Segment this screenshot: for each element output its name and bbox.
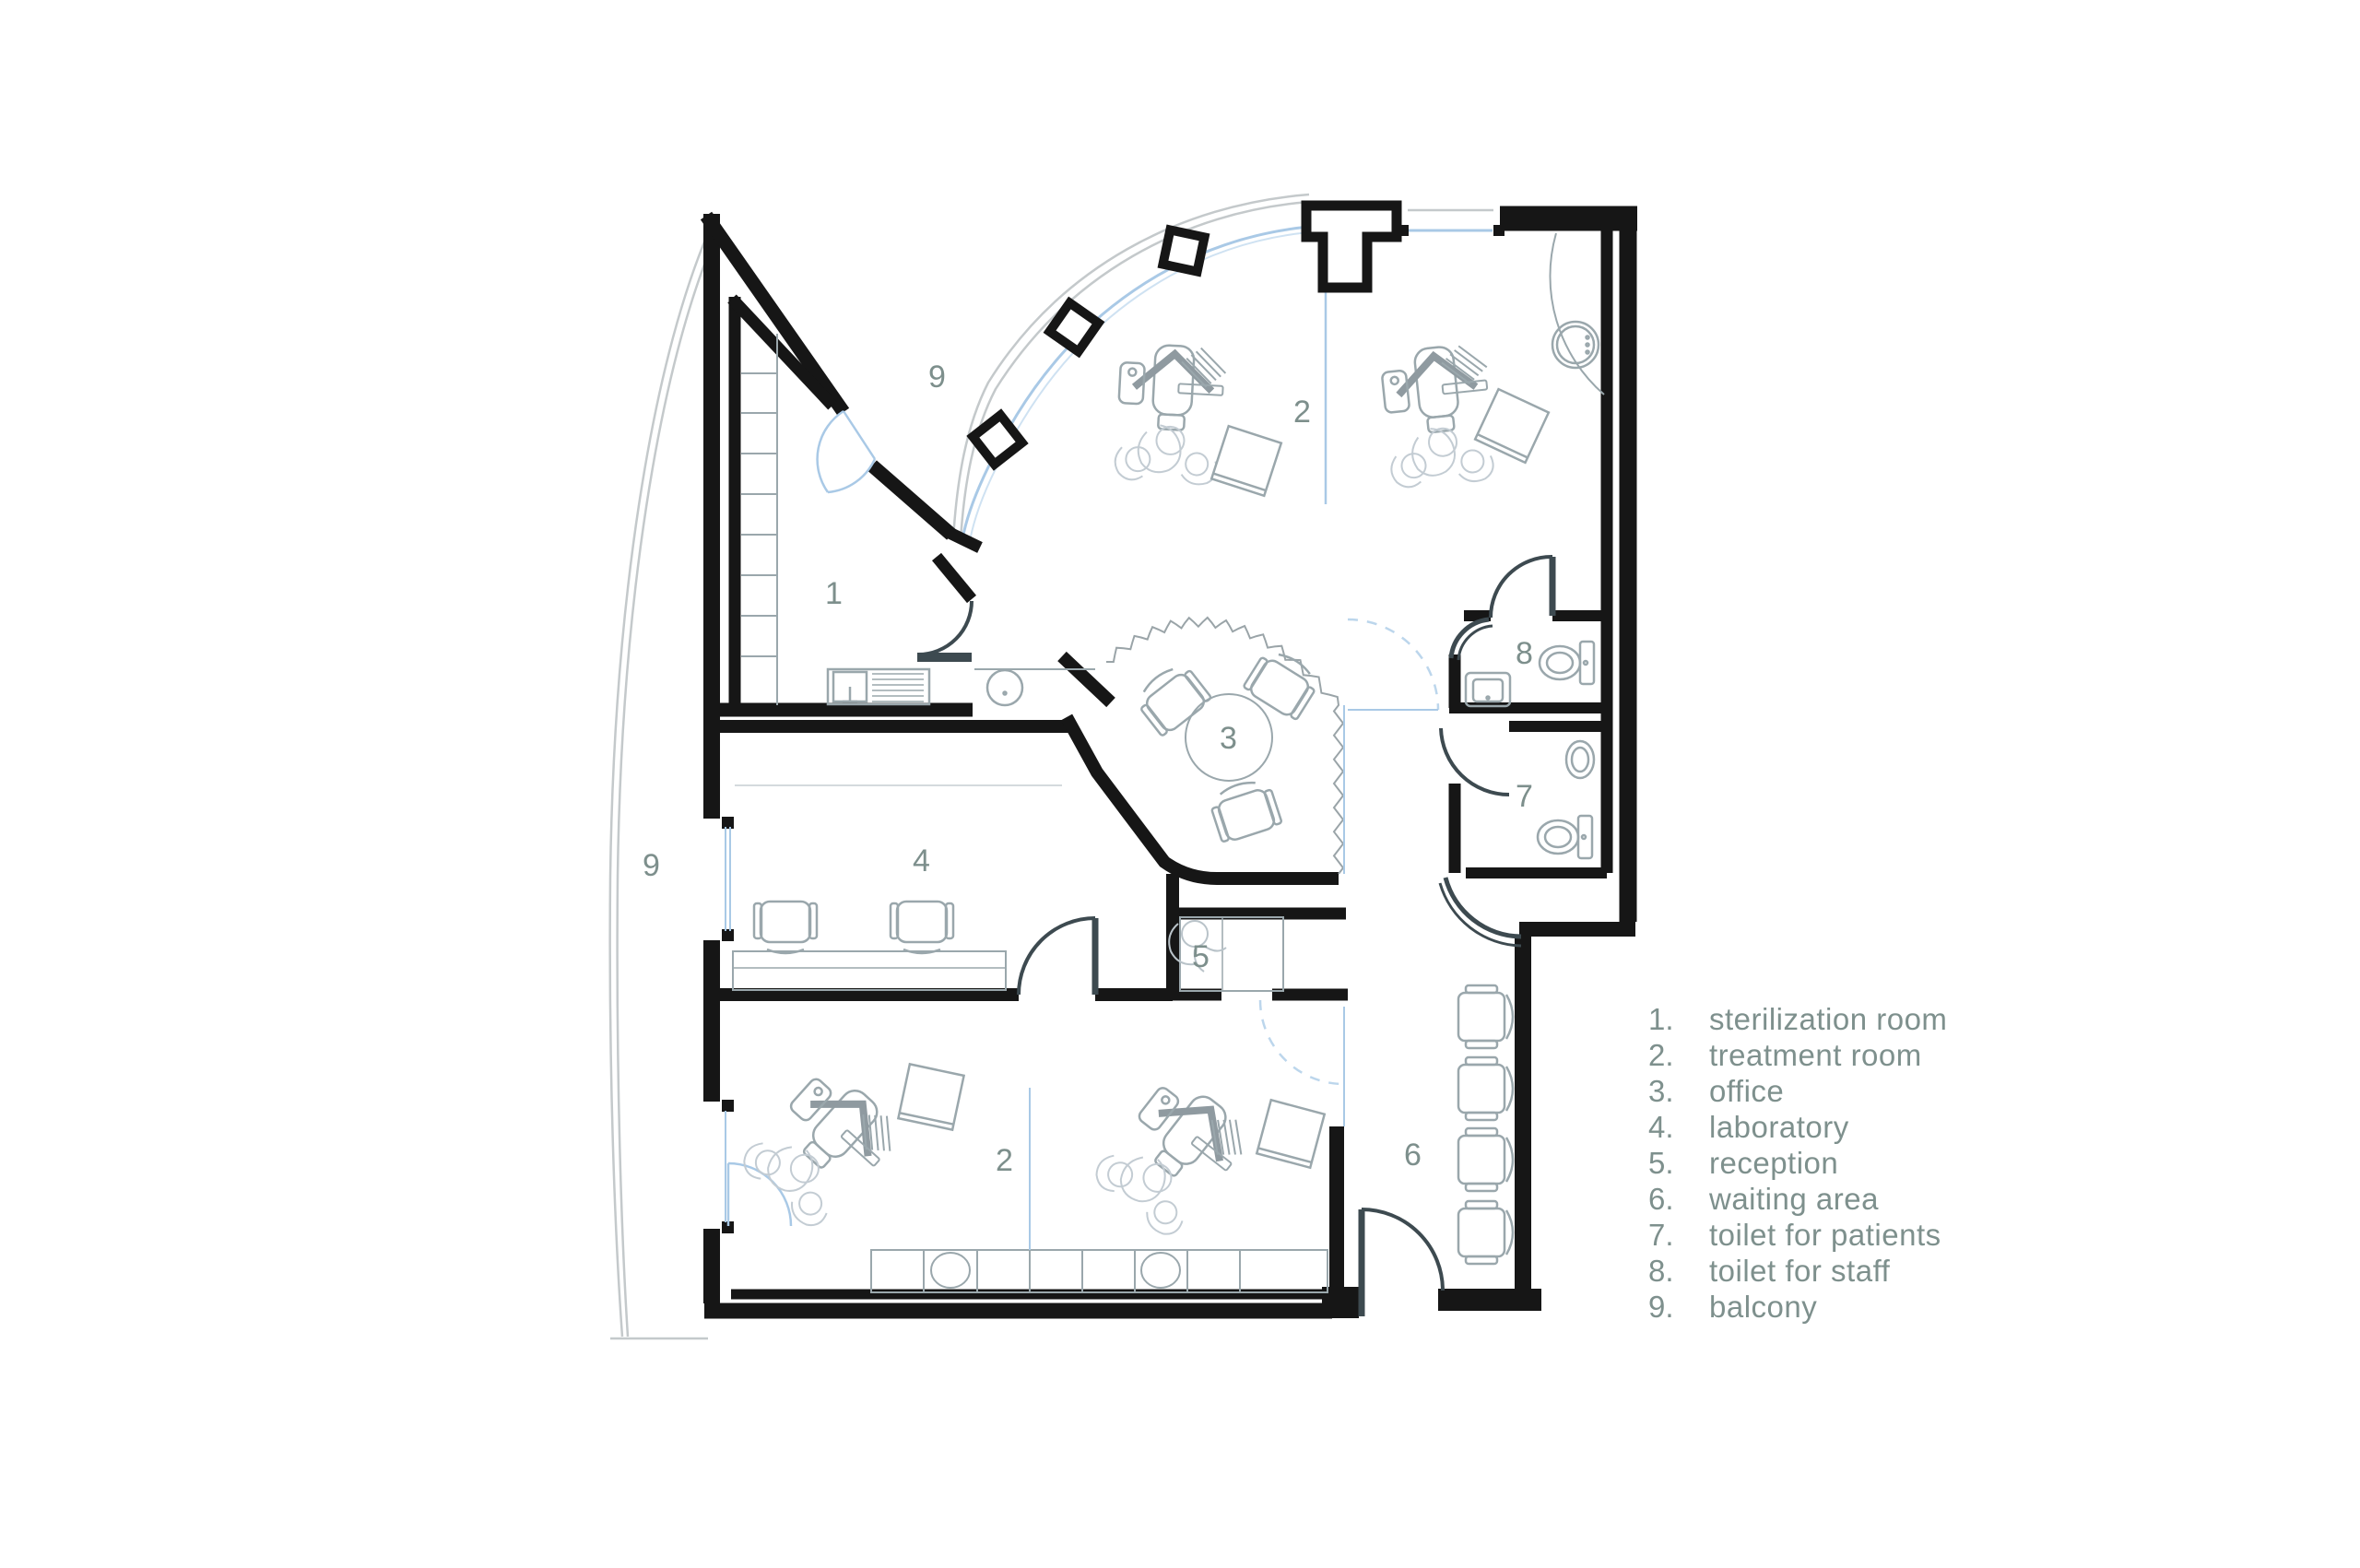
room-label-balcony-left: 9 <box>643 848 661 883</box>
room-label-reception: 5 <box>1192 939 1210 974</box>
toilet-staff-fixture <box>1540 642 1594 684</box>
treatment-cabinets <box>871 1250 1327 1292</box>
floor-plan-drawing: 1 2 2 3 4 5 6 7 8 9 9 <box>0 0 2360 1568</box>
room-label-waiting: 6 <box>1404 1138 1422 1173</box>
waiting-chair-2 <box>1458 1057 1513 1120</box>
room-label-sterilization: 1 <box>825 576 844 611</box>
room-label-toilet-patients: 7 <box>1516 779 1534 814</box>
legend-number: 4. <box>1648 1109 1709 1145</box>
dental-chair-top-right <box>1379 342 1498 489</box>
side-table-4 <box>1257 1100 1324 1167</box>
room-label-laboratory: 4 <box>913 843 931 878</box>
lab-chair-2 <box>891 902 953 953</box>
waiting-chair-1 <box>1458 985 1513 1048</box>
toilet-patients-fixture <box>1538 816 1592 858</box>
room-label-balcony-top: 9 <box>928 360 947 395</box>
toilet-patients-sink <box>1566 741 1594 778</box>
legend-number: 2. <box>1648 1037 1709 1073</box>
side-table-2 <box>1475 389 1549 463</box>
dental-chair-bottom-left <box>737 1062 907 1234</box>
legend-row: 4.laboratory <box>1648 1109 1947 1145</box>
legend-label: office <box>1709 1073 1784 1109</box>
legend-label: sterilization room <box>1709 1001 1947 1037</box>
lab-chair-1 <box>754 902 817 953</box>
legend-number: 3. <box>1648 1073 1709 1109</box>
dental-chair-bottom-right <box>1089 1070 1257 1244</box>
legend: 1.sterilization room 2.treatment room 3.… <box>1648 1001 1947 1325</box>
legend-label: laboratory <box>1709 1109 1849 1145</box>
legend-label: balcony <box>1709 1289 1817 1325</box>
toilet-staff-sink <box>1466 673 1510 706</box>
legend-row: 7.toilet for patients <box>1648 1217 1947 1253</box>
legend-number: 9. <box>1648 1289 1709 1325</box>
shelving <box>741 334 777 705</box>
room-label-toilet-staff: 8 <box>1516 636 1534 671</box>
legend-row: 8.toilet for staff <box>1648 1253 1947 1289</box>
legend-row: 9.balcony <box>1648 1289 1947 1325</box>
dental-chair-top-left <box>1115 343 1227 486</box>
legend-row: 6.waiting area <box>1648 1181 1947 1217</box>
side-table-1 <box>1211 426 1281 496</box>
doors <box>728 411 1552 1316</box>
room-label-office: 3 <box>1220 721 1238 756</box>
legend-number: 8. <box>1648 1253 1709 1289</box>
room-label-treatment-top: 2 <box>1293 395 1312 430</box>
waiting-chair-3 <box>1458 1128 1513 1191</box>
walls <box>704 206 1637 1318</box>
sterilization-counter <box>828 669 929 704</box>
reception-desk <box>1169 917 1283 991</box>
legend-label: toilet for staff <box>1709 1253 1890 1289</box>
side-table-3 <box>898 1064 963 1129</box>
legend-label: treatment room <box>1709 1037 1922 1073</box>
legend-number: 1. <box>1648 1001 1709 1037</box>
legend-row: 3.office <box>1648 1073 1947 1109</box>
legend-row: 5.reception <box>1648 1145 1947 1181</box>
legend-label: waiting area <box>1709 1181 1879 1217</box>
legend-label: reception <box>1709 1145 1838 1181</box>
legend-row: 1.sterilization room <box>1648 1001 1947 1037</box>
floor-plan-page: 1 2 2 3 4 5 6 7 8 9 9 1.sterilization ro… <box>0 0 2360 1568</box>
room-label-treatment-bottom: 2 <box>996 1143 1014 1178</box>
legend-label: toilet for patients <box>1709 1217 1941 1253</box>
legend-row: 2.treatment room <box>1648 1037 1947 1073</box>
legend-number: 6. <box>1648 1181 1709 1217</box>
legend-number: 5. <box>1648 1145 1709 1181</box>
legend-number: 7. <box>1648 1217 1709 1253</box>
waiting-chair-4 <box>1458 1201 1513 1264</box>
